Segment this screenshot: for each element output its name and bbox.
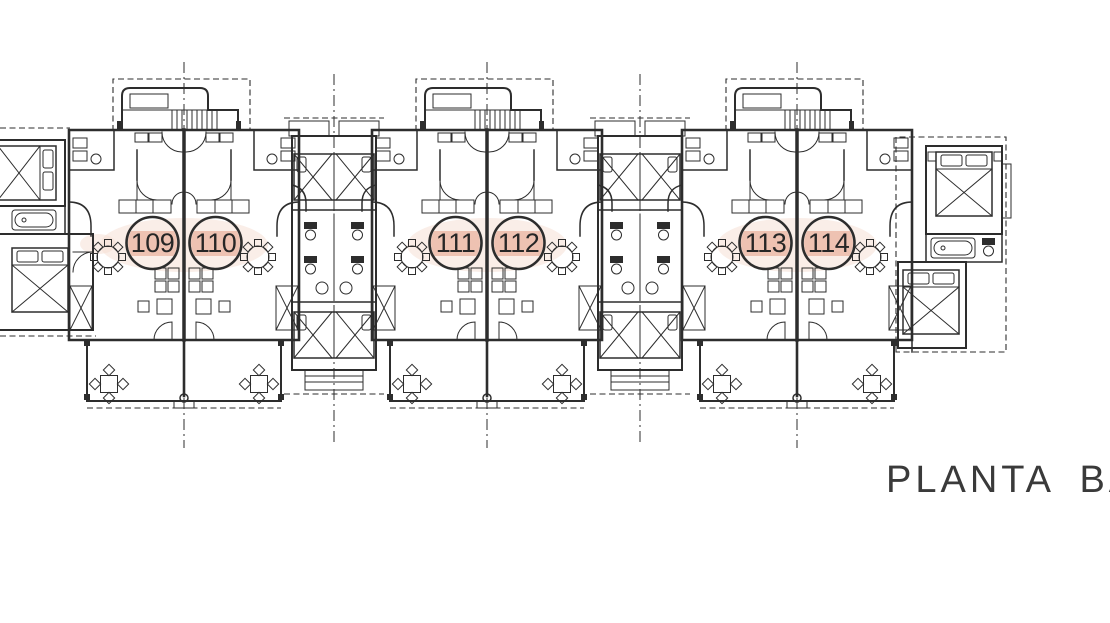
stairs-icon [726,79,863,131]
terrace [697,340,897,408]
double-bed-icon [0,146,56,200]
stairs-icon [113,79,250,131]
double-bed-icon [936,152,992,216]
unit-number: 112 [498,228,540,258]
floor-plan-drawing: 109 110 111 112 [0,0,1110,623]
left-end-wing [0,128,96,336]
bedroom-wall [926,146,1002,234]
module-units-111-112: 111 112 [372,79,602,408]
scanned-floorplan-page: 109 110 111 112 [0,0,1110,623]
stairs-icon [416,79,553,131]
bathtub-icon [931,238,975,258]
toilet-icon [982,238,995,256]
nightstand [994,152,1002,161]
unit-number: 113 [745,228,787,258]
bathtub-icon [12,210,56,230]
double-bed-icon [12,248,68,312]
unit-number: 110 [195,228,237,258]
terrace [387,340,587,408]
nightstand [928,152,936,161]
terrace [84,340,284,408]
unit-number: 109 [131,228,175,258]
balcony [1002,164,1011,218]
module-units-113-114: 113 114 [682,79,912,408]
link-section-bedrooms-baths [590,118,690,394]
unit-number: 111 [436,228,476,258]
unit-number: 114 [808,228,850,258]
plan-caption: PLANTA BA [886,459,1110,501]
